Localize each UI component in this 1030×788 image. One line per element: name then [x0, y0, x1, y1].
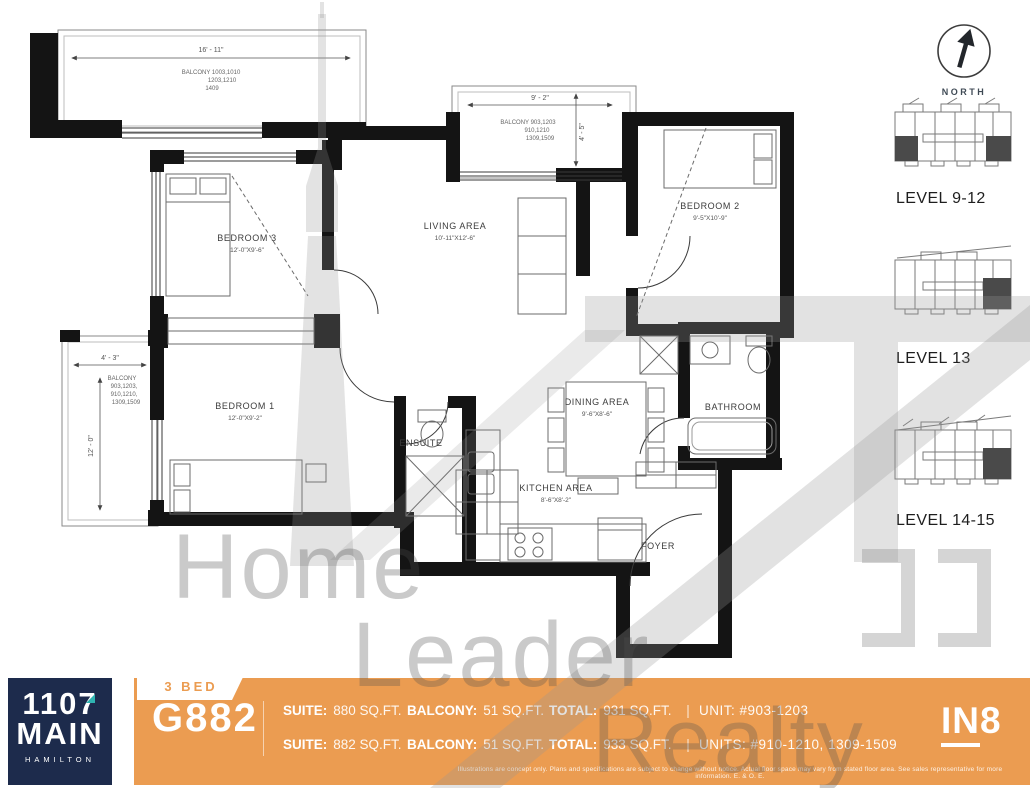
floorplan-sheet: 16' - 11" BALCONY 1003,1010 1203,1210 14… — [0, 0, 1030, 788]
logo-accent-triangle-icon — [86, 694, 95, 703]
unit-numbers: UNIT: #903-1203 — [699, 703, 809, 718]
keyplan-label-level-9-12: LEVEL 9-12 — [896, 190, 986, 208]
brand-in: IN — [941, 700, 980, 747]
suite-value: 880 SQ.FT. — [333, 703, 401, 718]
separator: | — [677, 703, 699, 718]
balcony2-label: BALCONY 903,1203 — [500, 120, 556, 126]
total-label: TOTAL: — [549, 737, 597, 752]
balcony1-label: BALCONY 1003,1010 — [182, 70, 241, 76]
dim-balcony3-height: 12' - 0" — [88, 435, 95, 457]
room-label-foyer: FOYER — [641, 541, 675, 551]
banner-divider — [263, 701, 264, 756]
walls — [30, 33, 794, 658]
closet-bedroom — [168, 318, 314, 344]
total-value: 931 SQ.FT. — [603, 703, 671, 718]
bed-bedroom2 — [636, 128, 776, 318]
model-name: G882 — [152, 696, 258, 741]
total-label: TOTAL: — [549, 703, 597, 718]
balcony-label: BALCONY: — [407, 703, 477, 718]
balcony-value: 51 SQ.FT. — [483, 703, 544, 718]
suite-value: 882 SQ.FT. — [333, 737, 401, 752]
room-dims-bedroom3: 12'-0"X9'-6" — [230, 247, 265, 254]
unit-numbers: UNITS: #910-1210, 1309-1509 — [699, 737, 897, 752]
separator: | — [677, 737, 699, 752]
keyplan-label-level-13: LEVEL 13 — [896, 350, 971, 368]
balcony3-label: BALCONY — [108, 376, 137, 382]
room-dims-dining: 9'-6"X8'-6" — [582, 411, 613, 418]
room-label-bedroom3: BEDROOM 3 — [217, 233, 276, 243]
room-label-bedroom2: BEDROOM 2 — [680, 201, 739, 211]
in8-brand-logo: IN8 — [941, 700, 1002, 742]
ensuite-fixtures — [406, 410, 464, 516]
keyplan-label-level-14-15: LEVEL 14-15 — [896, 512, 995, 530]
svg-text:903,1203,: 903,1203, — [111, 384, 138, 390]
north-compass: NORTH — [933, 22, 995, 97]
keyplan-level-9-12 — [893, 96, 1017, 182]
logo-line-main: MAIN — [8, 719, 112, 749]
building-logo: 1107 MAIN HAMILTON — [8, 678, 112, 785]
svg-text:1309,1509: 1309,1509 — [526, 136, 555, 142]
room-label-bedroom1: BEDROOM 1 — [215, 401, 274, 411]
suite-label: SUITE: — [283, 703, 327, 718]
room-dims-kitchen: 8'-6"X8'-2" — [541, 497, 572, 504]
logo-line-1107: 1107 — [8, 689, 112, 719]
north-arrow-icon — [935, 22, 993, 80]
svg-text:1409: 1409 — [205, 86, 219, 92]
dim-balcony1-width: 16' - 11" — [198, 47, 224, 54]
dim-balcony3-width: 4' - 3" — [101, 355, 119, 362]
floor-plan-drawing: 16' - 11" BALCONY 1003,1010 1203,1210 14… — [0, 0, 830, 670]
room-dims-bedroom2: 9'-5"X10'-9" — [693, 215, 728, 222]
spec-row-2: SUITE:882 SQ.FT. BALCONY:51 SQ.FT. TOTAL… — [283, 737, 897, 752]
room-label-ensuite: ENSUITE — [399, 438, 442, 448]
room-label-kitchen: KITCHEN AREA — [519, 483, 592, 493]
dim-balcony2-height: 4' - 5" — [579, 123, 586, 141]
balcony-label: BALCONY: — [407, 737, 477, 752]
bed-bedroom1 — [170, 460, 326, 514]
logo-line-hamilton: HAMILTON — [8, 755, 112, 764]
svg-text:910,1210,: 910,1210, — [111, 392, 138, 398]
dim-balcony2-width: 9' - 2" — [531, 95, 549, 102]
balcony-left-middle — [62, 336, 158, 526]
room-label-bathroom: BATHROOM — [705, 402, 761, 412]
room-label-living: LIVING AREA — [424, 221, 487, 231]
room-label-dining: DINING AREA — [565, 397, 630, 407]
brand-8: 8 — [980, 700, 1002, 741]
svg-text:910,1210: 910,1210 — [524, 128, 550, 134]
suite-label: SUITE: — [283, 737, 327, 752]
balcony-value: 51 SQ.FT. — [483, 737, 544, 752]
total-value: 933 SQ.FT. — [603, 737, 671, 752]
spec-row-1: SUITE:880 SQ.FT. BALCONY:51 SQ.FT. TOTAL… — [283, 703, 809, 718]
svg-text:1203,1210: 1203,1210 — [208, 78, 237, 84]
disclaimer-text: Illustrations are concept only. Plans an… — [452, 766, 1008, 780]
room-dims-bedroom1: 12'-0"X9'-2" — [228, 415, 263, 422]
kitchen-fixtures — [466, 430, 646, 562]
room-dims-living: 10'-11"X12'-6" — [435, 235, 476, 242]
bathroom-fixtures — [688, 336, 776, 454]
keyplan-level-14-15 — [893, 414, 1017, 500]
keyplan-level-13 — [893, 244, 1017, 330]
svg-text:1309,1509: 1309,1509 — [112, 400, 141, 406]
door-watermark-icon — [862, 556, 984, 640]
